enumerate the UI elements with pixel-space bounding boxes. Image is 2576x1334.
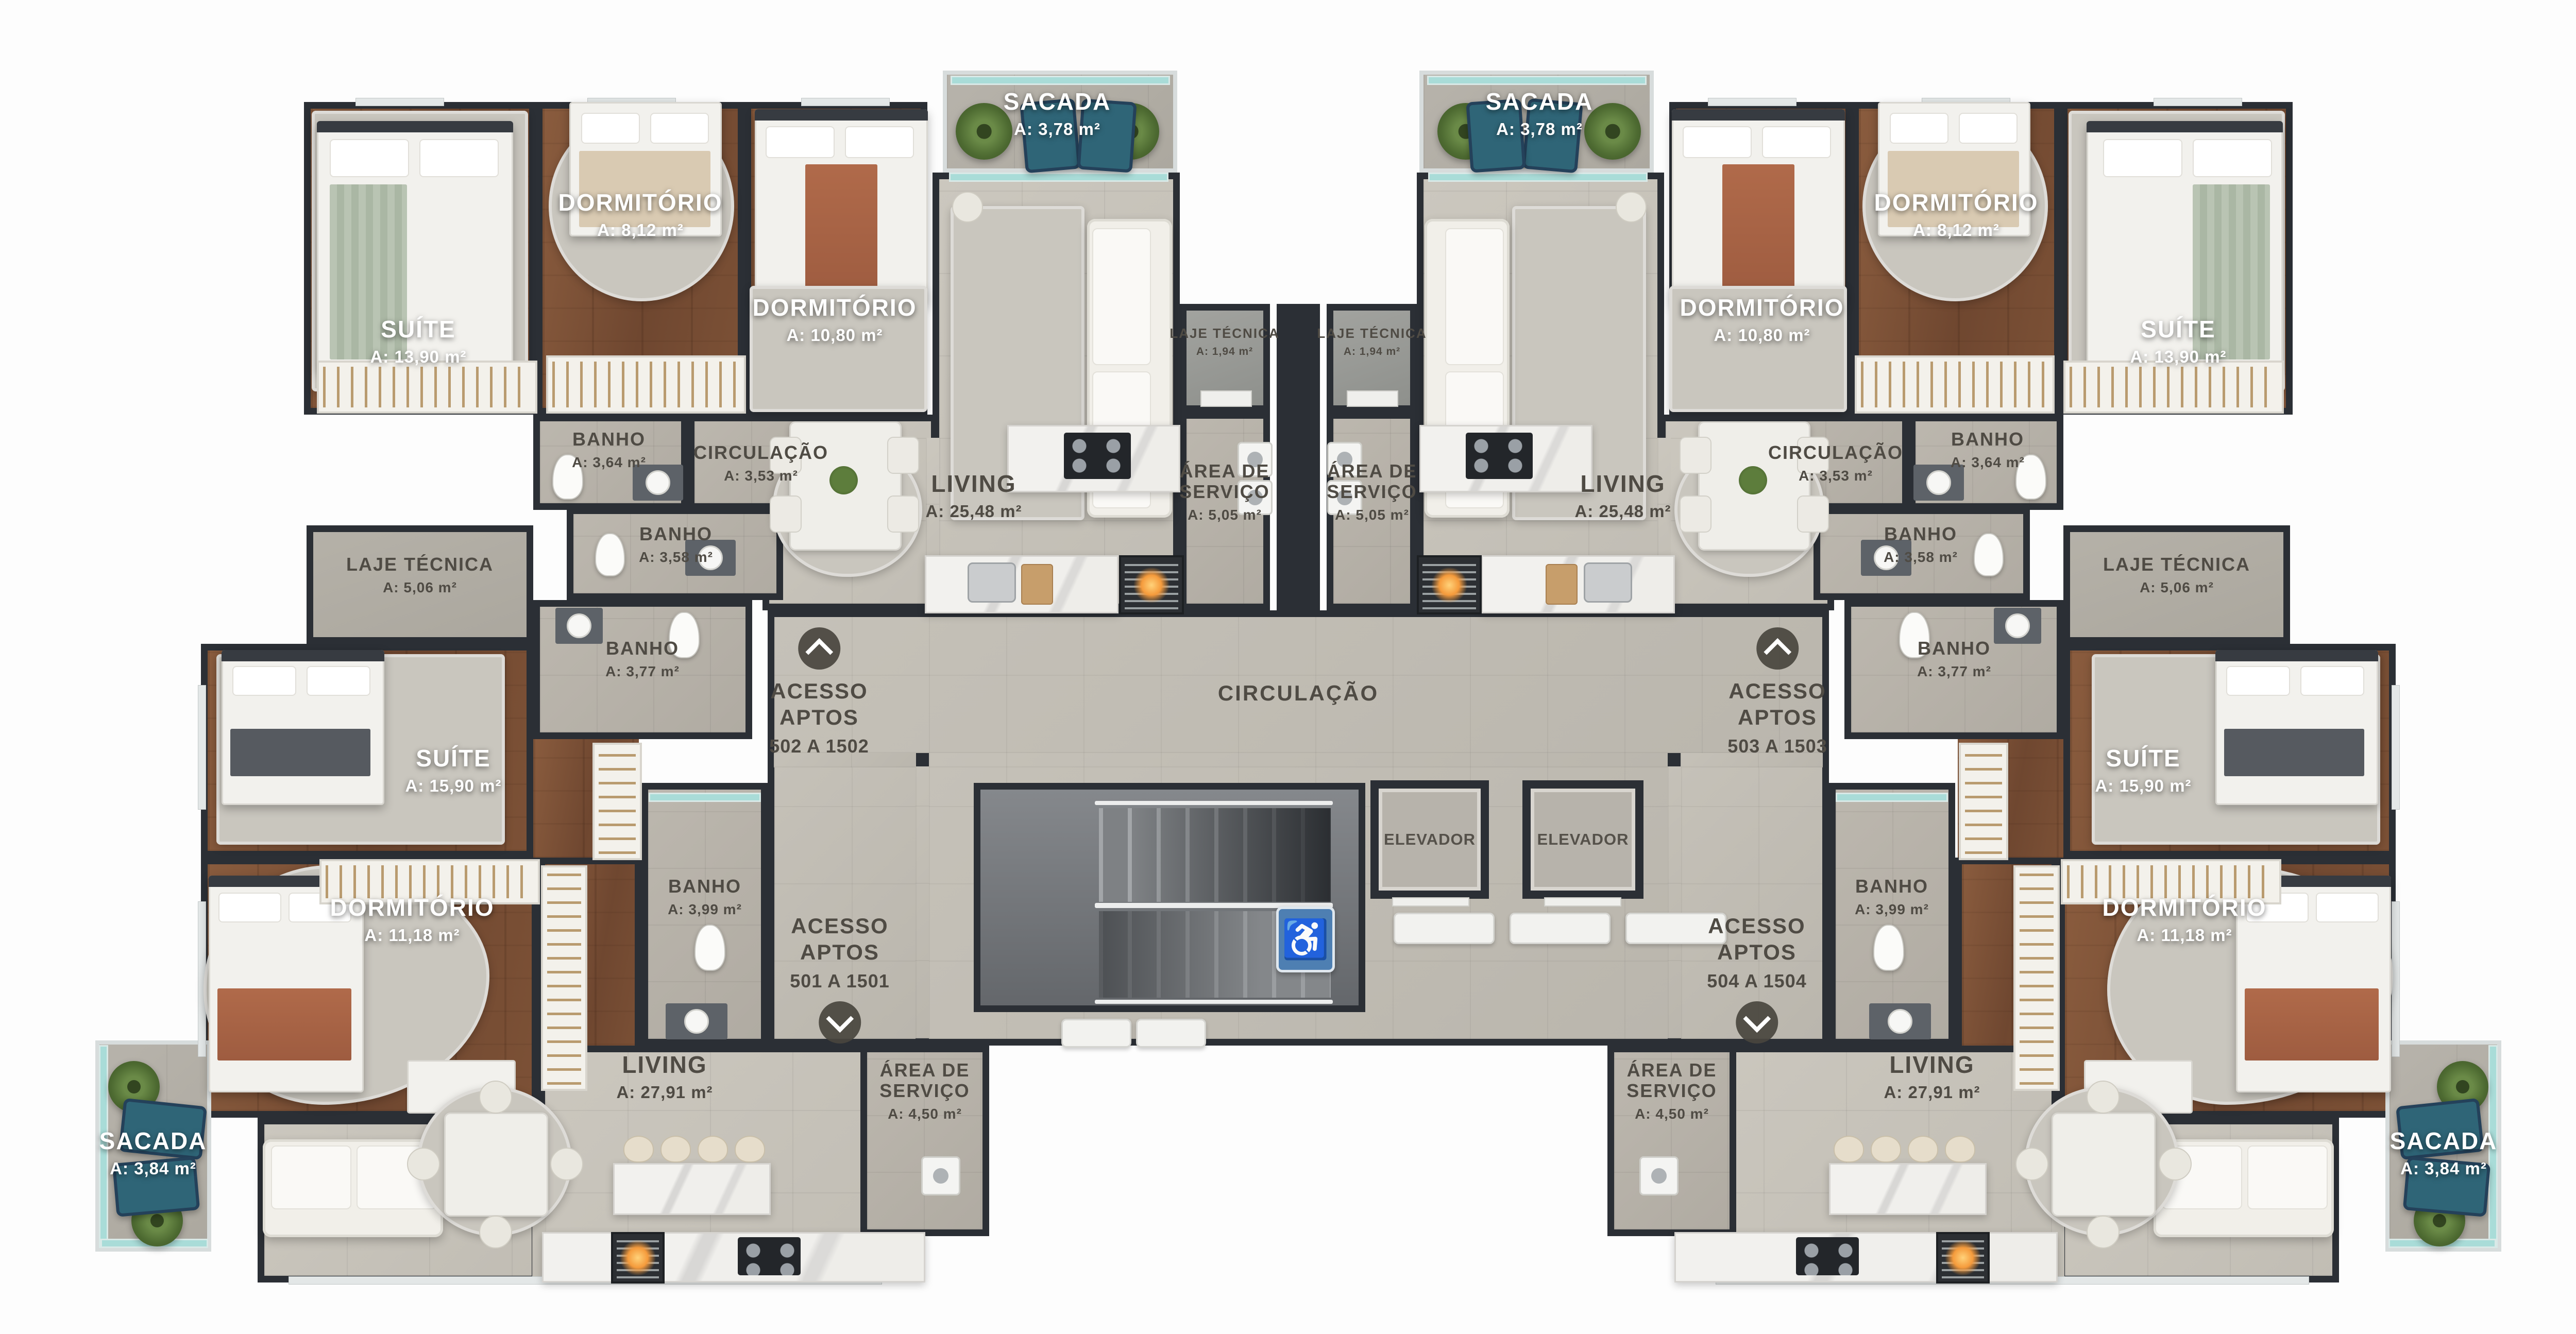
elevator-label: ELEVADOR xyxy=(1537,830,1629,849)
sofa-cushion xyxy=(271,1145,351,1209)
stair-rail xyxy=(1095,801,1333,805)
pillow xyxy=(650,113,709,144)
lounger xyxy=(112,1156,200,1217)
stool xyxy=(1945,1136,1975,1162)
lounger xyxy=(1522,98,1583,174)
pillow xyxy=(2226,666,2290,696)
vanity-sink xyxy=(666,1003,727,1039)
dining-chair xyxy=(1680,437,1711,474)
washer-icon xyxy=(1639,1156,1679,1195)
plant-icon xyxy=(1584,103,1641,160)
pillow xyxy=(330,139,409,177)
toilet xyxy=(2015,454,2046,500)
dining-chair xyxy=(2087,1216,2120,1249)
headboard xyxy=(1672,109,1845,121)
pillow xyxy=(1762,126,1831,158)
corridor-arm-left xyxy=(768,760,922,1046)
pillow xyxy=(2316,893,2379,922)
headboard xyxy=(2215,650,2378,661)
wardrobe xyxy=(317,361,537,414)
kitchen-sink xyxy=(968,562,1016,603)
bed-throw xyxy=(579,151,710,227)
wardrobe xyxy=(1855,355,2055,414)
bed-dormitorio-1080 xyxy=(755,109,928,305)
glass-rail xyxy=(1429,77,1645,83)
plant-icon xyxy=(829,466,858,494)
dining-chair xyxy=(2159,1148,2192,1181)
corridor-arm-right xyxy=(1674,760,1829,1046)
pillow xyxy=(307,666,370,696)
dining-chair xyxy=(770,437,802,474)
bed-suite-503 xyxy=(2087,121,2283,371)
stove-icon xyxy=(738,1237,801,1275)
shower-glass xyxy=(650,794,759,800)
headboard xyxy=(222,650,384,661)
pillow xyxy=(1890,113,1948,144)
pillow xyxy=(218,893,281,922)
rug xyxy=(1669,286,1847,412)
elevator-1: ELEVADOR xyxy=(1370,780,1489,899)
wardrobe xyxy=(2061,859,2281,904)
stool xyxy=(1871,1136,1901,1162)
bed-throw xyxy=(330,184,407,360)
room-servico-504 xyxy=(1607,1046,1736,1236)
stool xyxy=(623,1136,654,1162)
lounger xyxy=(1077,98,1137,173)
side-table xyxy=(1616,192,1647,223)
elevator-sill xyxy=(1392,897,1469,907)
pillow xyxy=(232,666,296,696)
bed-throw xyxy=(805,164,877,297)
room-servico-501 xyxy=(860,1046,989,1236)
wardrobe xyxy=(546,355,746,414)
window xyxy=(198,685,206,810)
cutting-board xyxy=(1021,564,1053,605)
pillow xyxy=(766,126,835,158)
glass-rail xyxy=(951,174,1167,180)
wheelchair-icon: ♿ xyxy=(1276,907,1335,972)
bed-throw xyxy=(2193,184,2270,360)
stool xyxy=(698,1136,728,1162)
wheelchair-glyph: ♿ xyxy=(1282,917,1329,962)
wardrobe xyxy=(592,743,642,860)
bed-throw xyxy=(230,729,370,776)
dining-table xyxy=(2052,1113,2156,1217)
toilet xyxy=(1974,533,2004,576)
dining-chair xyxy=(2087,1081,2120,1114)
sofa-cushion xyxy=(1092,228,1151,365)
pillow xyxy=(2193,139,2272,177)
lounger xyxy=(1020,98,1081,174)
pillow xyxy=(845,126,914,158)
dining-chair xyxy=(407,1148,440,1181)
kitchen-island xyxy=(1829,1163,1987,1215)
pillow xyxy=(581,113,640,144)
dining-chair xyxy=(479,1216,512,1249)
stove-icon xyxy=(1064,433,1131,479)
pillow xyxy=(2300,666,2364,696)
lounger xyxy=(1466,98,1526,173)
bed-dormitorio-812 xyxy=(569,102,722,236)
opening-patch xyxy=(1681,753,1823,767)
rug xyxy=(750,286,927,412)
window xyxy=(1708,98,1797,106)
wardrobe xyxy=(319,859,540,904)
bed-throw xyxy=(217,988,351,1061)
door xyxy=(1347,390,1398,407)
stove-icon xyxy=(1796,1237,1859,1275)
bed-dormitorio-812r xyxy=(1878,102,2030,236)
glass-rail xyxy=(2490,1047,2496,1246)
opening-patch xyxy=(1668,766,1681,1038)
cutting-board xyxy=(1546,564,1578,605)
bench xyxy=(1394,913,1495,944)
kitchen-counter xyxy=(1481,555,1675,613)
room-laje-506-right xyxy=(2063,525,2290,644)
dining-chair xyxy=(887,495,919,533)
bed-dormitorio-1080r xyxy=(1672,109,1845,305)
dining-table xyxy=(444,1113,548,1217)
bench xyxy=(1136,1019,1206,1048)
stool xyxy=(735,1136,765,1162)
toilet xyxy=(1873,925,1904,971)
side-table xyxy=(952,192,983,223)
barbecue-grill xyxy=(1119,555,1184,614)
stool xyxy=(660,1136,691,1162)
room-laje-506-left xyxy=(307,525,533,644)
stove-icon xyxy=(1466,433,1533,479)
stool xyxy=(1834,1136,1864,1162)
toilet xyxy=(694,925,725,971)
kitchen-counter xyxy=(542,1232,925,1282)
kitchen-sink xyxy=(1584,562,1632,603)
lounger xyxy=(2396,1098,2484,1160)
dining-chair xyxy=(1797,437,1829,474)
headboard xyxy=(2087,121,2283,132)
toilet xyxy=(1899,612,1930,658)
dining-chair xyxy=(2015,1148,2048,1181)
elevator-sill xyxy=(1544,897,1621,907)
barbecue-grill xyxy=(611,1232,665,1284)
pillow xyxy=(1959,113,2018,144)
window xyxy=(801,98,890,106)
opening-patch xyxy=(916,766,929,1038)
bed-dormitorio-1118 xyxy=(209,876,364,1092)
pillow xyxy=(419,139,499,177)
plant-icon xyxy=(1739,466,1767,494)
vanity-sink xyxy=(555,608,603,644)
stair-flight-up xyxy=(1099,808,1331,902)
elevator-2: ELEVADOR xyxy=(1522,780,1643,899)
elevator-label: ELEVADOR xyxy=(1384,830,1476,849)
dining-chair xyxy=(550,1148,583,1181)
wardrobe xyxy=(541,865,587,1091)
bench xyxy=(1061,1019,1131,1048)
window xyxy=(355,98,444,106)
core-shaft xyxy=(1277,304,1320,610)
headboard xyxy=(317,121,513,132)
washer-icon xyxy=(1238,442,1273,477)
wardrobe xyxy=(1959,743,2008,860)
vanity-sink xyxy=(1869,1003,1931,1039)
opening-patch xyxy=(774,753,916,767)
glass-rail xyxy=(1430,174,1646,180)
shower-glass xyxy=(1837,794,1946,800)
barbecue-grill xyxy=(1417,555,1482,614)
barbecue-grill xyxy=(1936,1232,1990,1284)
dining-chair xyxy=(770,495,802,533)
bed-throw xyxy=(1888,151,2019,227)
toilet xyxy=(552,454,583,500)
kitchen-counter xyxy=(1674,1232,2058,1282)
corridor-band xyxy=(768,610,1829,760)
sofa-cushion xyxy=(2247,1145,2328,1209)
washer-icon xyxy=(1238,480,1273,515)
pillow xyxy=(1683,126,1752,158)
dining-chair xyxy=(1680,495,1711,533)
window xyxy=(2154,98,2242,106)
stool xyxy=(1908,1136,1938,1162)
bed-throw xyxy=(1722,164,1794,297)
dining-chair xyxy=(887,437,919,474)
headboard xyxy=(755,109,928,121)
bed-dormitorio-1118r xyxy=(2236,876,2391,1092)
vanity-sink xyxy=(1994,608,2041,644)
glass-rail xyxy=(100,1047,107,1246)
bed-suite-502 xyxy=(317,121,513,371)
window xyxy=(2392,685,2400,810)
glass-rail xyxy=(952,77,1168,83)
toilet xyxy=(595,533,625,576)
wardrobe xyxy=(2063,361,2284,414)
bed-suite-501 xyxy=(222,650,384,805)
vanity-sink xyxy=(685,540,736,576)
toilet xyxy=(669,612,700,658)
vanity-sink xyxy=(633,465,683,501)
washer-icon xyxy=(1327,442,1362,477)
lounger xyxy=(118,1098,207,1160)
pillow xyxy=(2103,139,2182,177)
bench xyxy=(1625,913,1726,944)
bed-throw xyxy=(2245,988,2379,1061)
stair-rail xyxy=(1095,1000,1333,1004)
washer-icon xyxy=(1327,480,1362,515)
bed-throw xyxy=(2224,729,2364,776)
stairwell xyxy=(974,783,1365,1012)
washer-icon xyxy=(921,1156,960,1195)
sofa-cushion xyxy=(1445,228,1504,365)
opening-patch xyxy=(929,753,1668,767)
bed-suite-504 xyxy=(2215,650,2378,805)
dining-chair xyxy=(1797,495,1829,533)
plant-icon xyxy=(956,103,1012,160)
lounger xyxy=(2403,1156,2490,1217)
vanity-sink xyxy=(1913,465,1964,501)
wardrobe xyxy=(2013,865,2060,1091)
floor-plan: ELEVADOR ELEVADOR ♿ xyxy=(0,0,2576,1334)
dining-chair xyxy=(479,1081,512,1114)
kitchen-island xyxy=(613,1163,771,1215)
vanity-sink xyxy=(1861,540,1911,576)
bench xyxy=(1510,913,1611,944)
door xyxy=(1200,390,1252,407)
